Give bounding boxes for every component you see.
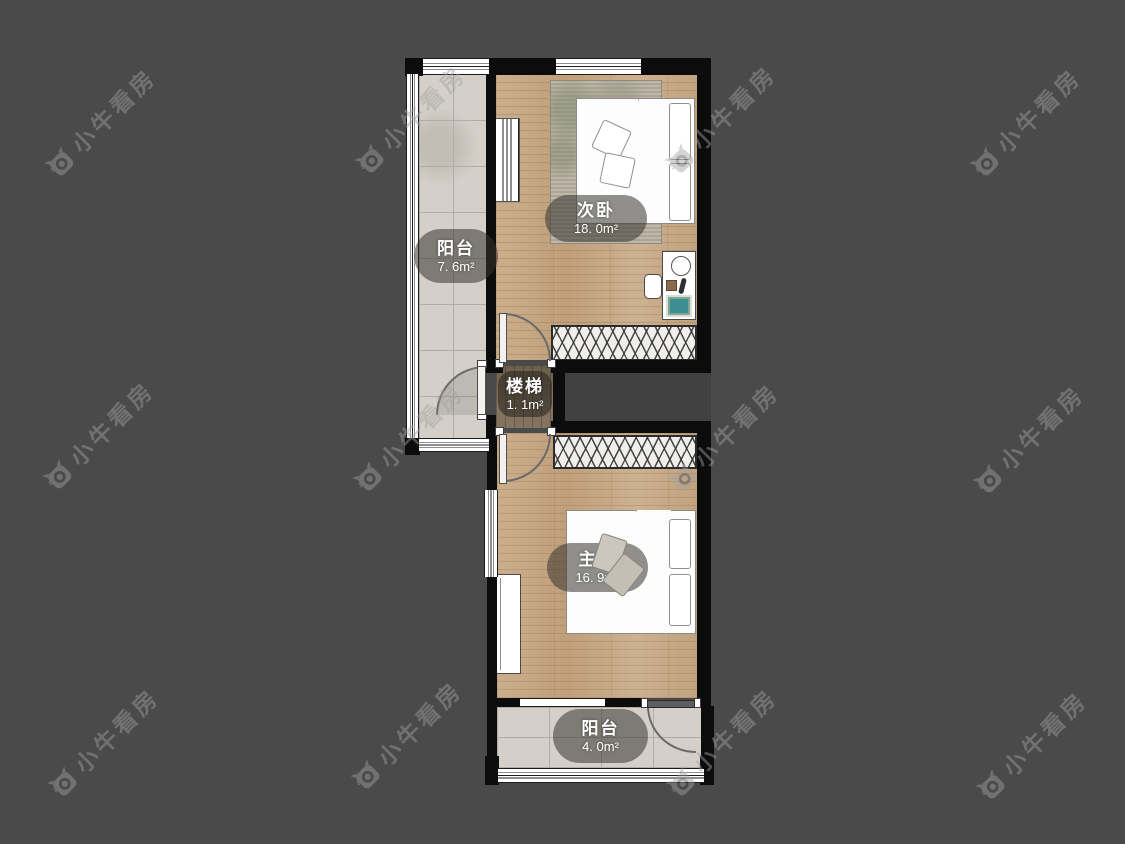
- window: [556, 58, 641, 75]
- vanity-box: [666, 280, 677, 291]
- bull-logo-icon: [969, 460, 1007, 498]
- watermark: 小牛看房: [39, 47, 175, 183]
- watermark: 小牛看房: [967, 364, 1103, 500]
- artwork: [666, 295, 692, 317]
- room-area: 7. 6m²: [414, 259, 498, 275]
- void-notch: [565, 373, 711, 421]
- window: [498, 768, 704, 783]
- wall: [489, 58, 556, 75]
- wall: [697, 421, 711, 706]
- watermark-text: 小牛看房: [993, 682, 1093, 782]
- cabinet: [495, 574, 521, 674]
- watermark: 小牛看房: [964, 47, 1100, 183]
- bull-logo-icon: [39, 456, 77, 494]
- watermark: 小牛看房: [37, 360, 173, 496]
- pillow: [669, 163, 691, 221]
- cabinet-inner-line: [500, 578, 501, 670]
- wall: [405, 438, 420, 455]
- room-name: 阳台: [553, 718, 648, 739]
- door-leaf: [647, 700, 695, 708]
- bull-logo-icon: [351, 140, 389, 178]
- pillow: [669, 574, 691, 626]
- bull-logo-icon: [972, 766, 1010, 804]
- bull-logo-icon: [347, 756, 385, 794]
- floorplan-canvas: 阳台 7. 6m² 次卧 18. 0m² 楼梯 1. 1m² 主卧 16. 9m…: [0, 0, 1125, 844]
- bull-logo-icon: [41, 143, 79, 181]
- wardrobe-secondary: [551, 325, 697, 361]
- wall: [485, 756, 499, 785]
- wall: [697, 58, 711, 373]
- window: [423, 58, 489, 75]
- wall: [551, 360, 711, 373]
- room-label-bedroom-secondary: 次卧 18. 0m²: [545, 195, 647, 242]
- watermark-text: 小牛看房: [62, 59, 162, 159]
- window: [520, 698, 605, 707]
- watermark-text: 小牛看房: [65, 679, 165, 779]
- wall: [486, 58, 496, 368]
- room-label-balcony-bottom: 阳台 4. 0m²: [553, 709, 648, 763]
- window: [419, 438, 489, 452]
- room-name: 阳台: [414, 238, 498, 259]
- door-leaf: [499, 434, 507, 484]
- room-label-stairs: 楼梯 1. 1m²: [498, 371, 552, 417]
- wardrobe-master: [553, 435, 697, 469]
- watermark-text: 小牛看房: [987, 59, 1087, 159]
- window-panel: [494, 118, 520, 202]
- pillow: [669, 519, 691, 569]
- watermark: 小牛看房: [970, 670, 1106, 806]
- watermark-text: 小牛看房: [60, 372, 160, 472]
- room-area: 18. 0m²: [545, 221, 647, 237]
- bull-logo-icon: [966, 143, 1004, 181]
- throw-pillow: [599, 152, 636, 189]
- room-area: 4. 0m²: [553, 739, 648, 755]
- bull-logo-icon: [349, 458, 387, 496]
- room-name: 楼梯: [498, 376, 552, 397]
- wall: [551, 421, 711, 433]
- watermark-text: 小牛看房: [368, 672, 468, 772]
- vanity-mirror: [671, 256, 691, 276]
- room-name: 次卧: [545, 200, 647, 221]
- room-label-balcony-left: 阳台 7. 6m²: [414, 229, 498, 283]
- bull-logo-icon: [44, 763, 82, 801]
- watermark: 小牛看房: [42, 667, 178, 803]
- watermark-text: 小牛看房: [990, 376, 1090, 476]
- room-area: 1. 1m²: [498, 397, 552, 413]
- watermark: 小牛看房: [345, 660, 481, 796]
- door-leaf: [477, 366, 486, 415]
- wall: [487, 698, 520, 707]
- window: [484, 490, 498, 577]
- door-leaf: [499, 313, 507, 363]
- vanity-stool: [644, 274, 662, 299]
- pillow: [669, 103, 691, 160]
